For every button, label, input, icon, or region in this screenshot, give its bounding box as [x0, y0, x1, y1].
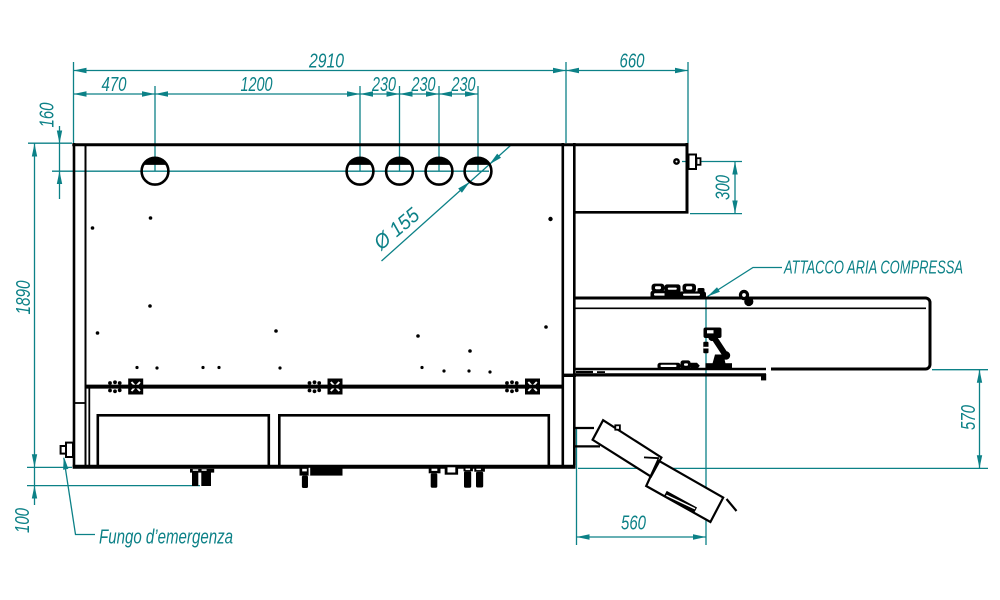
- svg-text:560: 560: [621, 512, 646, 535]
- svg-text:230: 230: [371, 73, 396, 96]
- svg-text:Fungo d’emergenza: Fungo d’emergenza: [99, 526, 233, 549]
- svg-text:230: 230: [411, 73, 436, 96]
- svg-text:230: 230: [451, 73, 476, 96]
- svg-text:660: 660: [620, 50, 645, 73]
- svg-text:ATTACCO ARIA COMPRESSA: ATTACCO ARIA COMPRESSA: [783, 257, 963, 278]
- svg-text:160: 160: [36, 102, 59, 127]
- svg-text:100: 100: [11, 508, 34, 533]
- svg-text:300: 300: [712, 175, 735, 200]
- svg-text:470: 470: [102, 73, 127, 96]
- svg-text:1200: 1200: [241, 73, 273, 96]
- svg-text:1890: 1890: [12, 280, 35, 314]
- svg-text:2910: 2910: [308, 50, 344, 73]
- svg-text:570: 570: [957, 405, 980, 430]
